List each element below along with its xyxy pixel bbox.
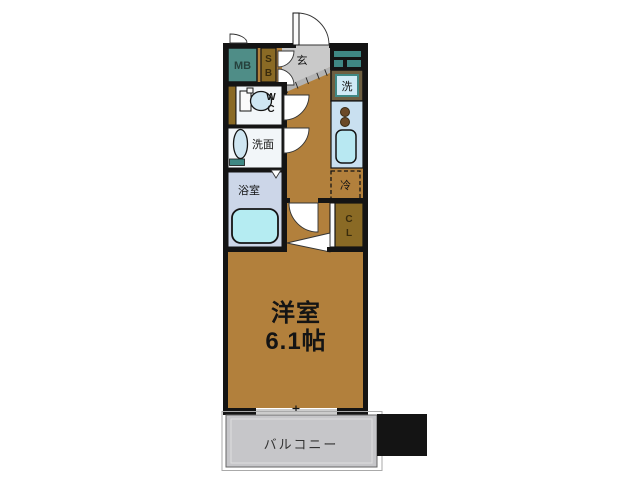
room-toilet: W C bbox=[228, 86, 282, 125]
washing-machine-space: 洗 bbox=[331, 70, 363, 101]
wall-bath-bottom bbox=[223, 247, 287, 252]
kitchen-sink bbox=[336, 130, 356, 163]
toilet-label-w: W bbox=[266, 92, 276, 103]
closet-door-panel bbox=[330, 203, 335, 247]
refrigerator-label: 冷 bbox=[340, 179, 351, 192]
balcony: バルコニー bbox=[222, 412, 382, 471]
wall-room-top-left bbox=[282, 198, 290, 203]
stove-burner-2 bbox=[341, 118, 350, 127]
floor-plan-drawing: 玄 MB S B W C bbox=[0, 0, 640, 480]
room-washroom: 洗面 bbox=[228, 128, 282, 168]
wall-closet-bottom bbox=[327, 247, 368, 252]
pillar-box bbox=[377, 414, 427, 456]
main-room-size-label: 6.1帖 bbox=[265, 328, 326, 355]
meter-box-label: MB bbox=[234, 60, 251, 72]
washer-label: 洗 bbox=[342, 80, 353, 93]
meter-box: MB bbox=[228, 34, 257, 82]
toilet-label-c: C bbox=[267, 104, 274, 115]
washroom-label: 洗面 bbox=[252, 138, 274, 151]
pipe-space-strip bbox=[228, 86, 236, 125]
utility-vent-right bbox=[347, 60, 361, 67]
stove-burner-1 bbox=[341, 108, 350, 117]
toilet-button bbox=[247, 88, 253, 93]
wall-room-top-right bbox=[318, 198, 368, 203]
washbasin bbox=[234, 130, 248, 159]
utility-pipe-space bbox=[330, 43, 368, 70]
entry-door-leaf bbox=[293, 13, 299, 45]
entry-door-swing-arc bbox=[297, 13, 329, 45]
bathroom-label: 浴室 bbox=[238, 183, 260, 197]
closet-label-l: L bbox=[346, 228, 352, 239]
balcony-label: バルコニー bbox=[264, 437, 339, 452]
meter-box-door-arc bbox=[230, 34, 247, 43]
shoe-box-label-s: S bbox=[265, 54, 272, 65]
bathtub bbox=[232, 209, 278, 243]
toilet-tank bbox=[240, 91, 251, 111]
utility-vent-small bbox=[334, 60, 343, 67]
shoe-box-label-b: B bbox=[265, 68, 272, 79]
floor-plan-page: 玄 MB S B W C bbox=[0, 0, 640, 480]
closet-interior bbox=[335, 203, 363, 247]
closet-label-c: C bbox=[345, 214, 352, 225]
utility-vent-wide bbox=[334, 51, 361, 57]
washroom-counter bbox=[230, 159, 245, 166]
entrance-label: 玄 bbox=[297, 53, 308, 67]
main-room-name-label: 洋室 bbox=[271, 299, 321, 327]
room-bathroom: 浴室 bbox=[228, 170, 282, 247]
kitchen bbox=[331, 101, 363, 168]
